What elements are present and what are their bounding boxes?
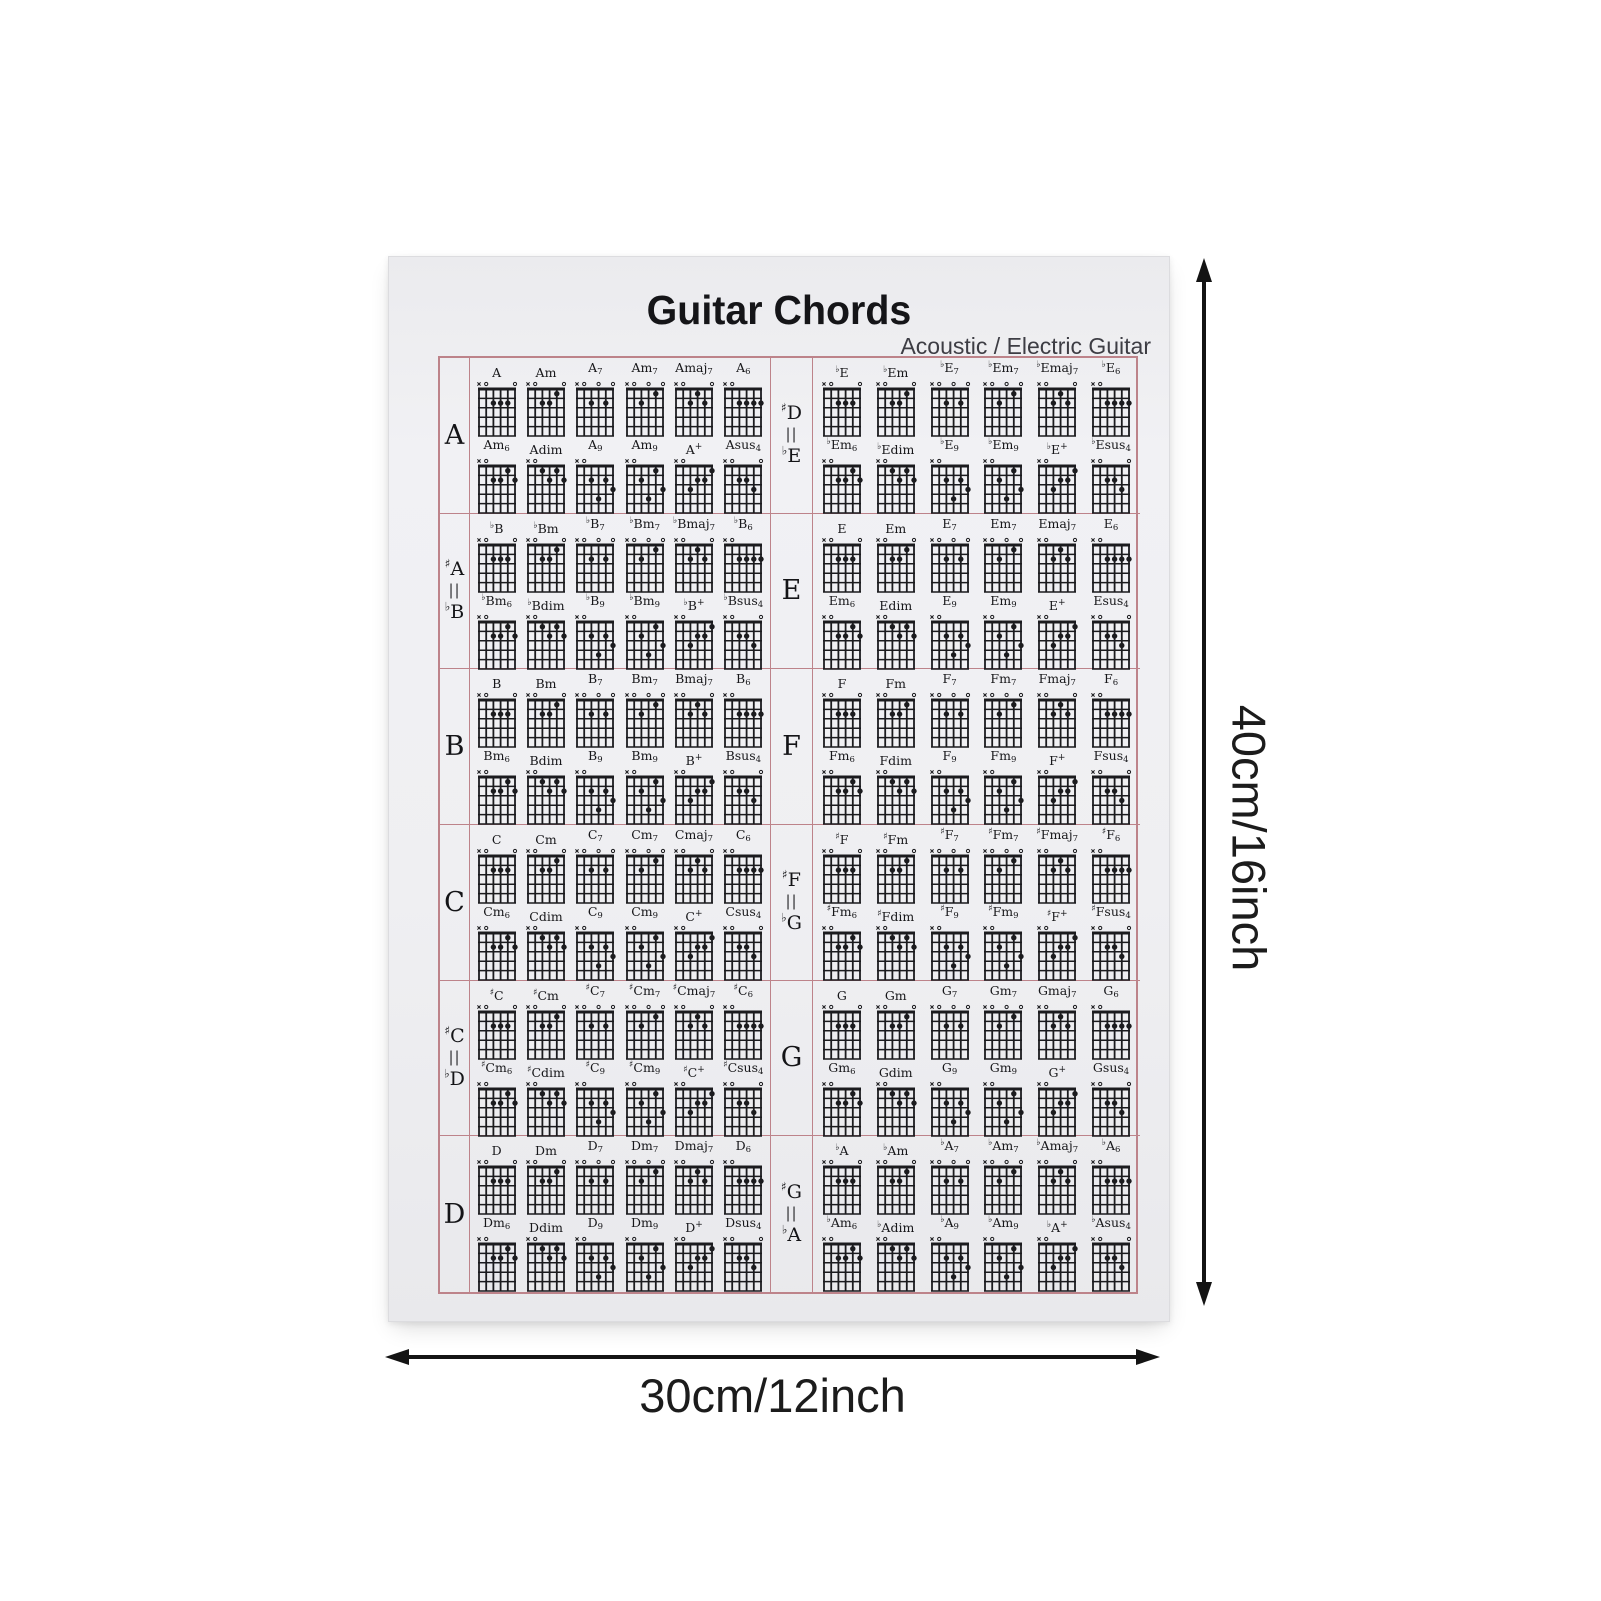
fretboard-diagram: [475, 380, 519, 438]
chord-diagram-cell: A: [472, 361, 521, 438]
fretboard-diagram: [524, 536, 568, 594]
chord-name: Emaj7: [1038, 517, 1076, 535]
chord-name: ♭B9: [586, 594, 605, 612]
fretboard-diagram: [1089, 380, 1133, 438]
chord-name: ♭Bm7: [629, 517, 660, 535]
chord-name: Adim: [530, 443, 563, 456]
chord-name: ♭Esus4: [1091, 438, 1131, 456]
chord-diagram-cell: Dmaj7: [669, 1139, 718, 1216]
chord-diagram-cell: Fmaj7: [1030, 672, 1084, 749]
chord-name: Fsus4: [1094, 749, 1129, 767]
fretboard-diagram: [874, 457, 918, 515]
height-dimension-label: 40cm/16inch: [1222, 705, 1277, 972]
fretboard-diagram: [981, 613, 1025, 671]
chord-name: ♭E+: [1047, 443, 1068, 456]
chord-name: E+: [1049, 599, 1066, 612]
fretboard-diagram: [1089, 768, 1133, 826]
chord-diagram-cell: Am: [521, 361, 570, 438]
chord-diagram-cell: ♯F6: [1084, 828, 1138, 905]
chord-name: Am: [536, 366, 557, 379]
fretboard-diagram: [721, 457, 765, 515]
fretboard-diagram: [981, 1003, 1025, 1061]
chord-name: Amaj7: [675, 361, 713, 379]
guitar-chords-poster: Guitar Chords Acoustic / Electric Guitar…: [388, 256, 1170, 1322]
chord-name: A9: [588, 438, 602, 456]
chord-diagram-cell: B: [472, 672, 521, 749]
fretboard-diagram: [524, 1003, 568, 1061]
fretboard-diagram: [928, 1235, 972, 1293]
chord-name: A7: [588, 361, 602, 379]
fretboard-diagram: [874, 613, 918, 671]
chord-diagram-cell: G+: [1030, 1061, 1084, 1138]
chord-name: Bm: [535, 677, 556, 690]
chord-diagram-cell: ♭Emaj7: [1030, 361, 1084, 438]
fretboard-diagram: [820, 613, 864, 671]
chord-name: B9: [588, 749, 603, 767]
chord-name: Edim: [879, 599, 912, 612]
chord-diagram-cell: F9: [923, 749, 977, 826]
fretboard-diagram: [721, 1003, 765, 1061]
chord-diagram-cell: ♭B7: [571, 517, 620, 594]
chord-block: ♭B♭Bm♭B7♭Bm7♭Bmaj7♭B6♭Bm6♭Bdim♭B9♭Bm9♭B+…: [470, 514, 771, 670]
fretboard-diagram: [928, 457, 972, 515]
fretboard-diagram: [475, 457, 519, 515]
fretboard-diagram: [672, 1235, 716, 1293]
chord-diagram-cell: ♭B9: [571, 594, 620, 671]
fretboard-diagram: [1035, 924, 1079, 982]
width-arrow: [383, 1344, 1162, 1370]
fretboard-diagram: [573, 1235, 617, 1293]
fretboard-diagram: [475, 924, 519, 982]
chord-name: Bdim: [529, 754, 562, 767]
row-key-label: B: [440, 669, 470, 825]
fretboard-diagram: [928, 613, 972, 671]
fretboard-diagram: [623, 1235, 667, 1293]
chord-name: Gm7: [990, 984, 1017, 1002]
fretboard-diagram: [1089, 924, 1133, 982]
chord-diagram-cell: A9: [571, 438, 620, 515]
chord-name: ♭Am9: [988, 1216, 1019, 1234]
chord-diagram-cell: E6: [1084, 517, 1138, 594]
fretboard-diagram: [1035, 1235, 1079, 1293]
fretboard-diagram: [524, 613, 568, 671]
chord-name: Gm6: [828, 1061, 855, 1079]
chord-diagram-cell: ♯Cm7: [620, 984, 669, 1061]
fretboard-diagram: [1035, 613, 1079, 671]
chord-diagram-cell: ♭Asus4: [1084, 1216, 1138, 1293]
chord-diagram-cell: C7: [571, 828, 620, 905]
chord-diagram-cell: Dsus4: [719, 1216, 768, 1293]
chord-diagram-cell: Cm7: [620, 828, 669, 905]
fretboard-diagram: [981, 1235, 1025, 1293]
chord-name: ♯F6: [1102, 828, 1120, 846]
chord-name: B6: [736, 672, 751, 690]
chord-diagram-cell: ♭A7: [923, 1139, 977, 1216]
chord-name: ♭Bdim: [527, 599, 564, 612]
chord-name: ♯Csus4: [723, 1061, 763, 1079]
chord-diagram-cell: Bm6: [472, 749, 521, 826]
fretboard-diagram: [928, 1080, 972, 1138]
chord-name: ♭Am: [883, 1144, 908, 1157]
fretboard-diagram: [623, 1158, 667, 1216]
chord-name: Fmaj7: [1039, 672, 1076, 690]
chord-diagram-cell: Cmaj7: [669, 828, 718, 905]
chord-diagram-cell: ♯F7: [923, 828, 977, 905]
chord-name: Em9: [990, 594, 1016, 612]
chord-name: ♯Cm: [533, 989, 559, 1002]
row-key-label: ♯D||♭E: [771, 358, 813, 514]
chord-name: Cm7: [631, 828, 658, 846]
chord-name: G9: [942, 1061, 957, 1079]
chord-name: ♭A+: [1047, 1221, 1068, 1234]
fretboard-diagram: [721, 1080, 765, 1138]
chord-name: Dm: [535, 1144, 557, 1157]
chord-name: ♭Am7: [988, 1139, 1019, 1157]
chord-diagram-cell: C6: [719, 828, 768, 905]
fretboard-diagram: [524, 691, 568, 749]
chord-name: E7: [942, 517, 957, 535]
fretboard-diagram: [524, 1158, 568, 1216]
chord-diagram-cell: Bm7: [620, 672, 669, 749]
chord-name: A+: [686, 443, 703, 456]
chord-diagram-cell: Fsus4: [1084, 749, 1138, 826]
chord-diagram-cell: ♭Esus4: [1084, 438, 1138, 515]
chord-diagram-cell: ♯Fm7: [976, 828, 1030, 905]
chord-diagram-cell: ♯C: [472, 984, 521, 1061]
chord-diagram-cell: ♭E+: [1030, 438, 1084, 515]
chord-diagram-cell: ♯F: [815, 828, 869, 905]
chord-name: A: [492, 366, 501, 379]
chord-name: ♯Cm9: [629, 1061, 660, 1079]
chord-diagram-cell: ♭Bm: [521, 517, 570, 594]
chord-diagram-cell: Fdim: [869, 749, 923, 826]
chord-name: ♭A9: [940, 1216, 959, 1234]
chord-name: Fm7: [990, 672, 1016, 690]
chord-diagram-cell: Am9: [620, 438, 669, 515]
chord-name: D7: [588, 1139, 603, 1157]
chord-name: ♭Bsus4: [723, 594, 763, 612]
chord-name: ♭Bm6: [481, 594, 512, 612]
chord-diagram-cell: B7: [571, 672, 620, 749]
chord-diagram-cell: ♯Csus4: [719, 1061, 768, 1138]
fretboard-diagram: [1035, 847, 1079, 905]
chord-diagram-cell: Edim: [869, 594, 923, 671]
chord-diagram-cell: ♯Fmaj7: [1030, 828, 1084, 905]
fretboard-diagram: [573, 847, 617, 905]
fretboard-diagram: [573, 613, 617, 671]
chord-diagram-cell: E: [815, 517, 869, 594]
fretboard-diagram: [475, 691, 519, 749]
chord-diagram-cell: Fm9: [976, 749, 1030, 826]
fretboard-diagram: [981, 924, 1025, 982]
fretboard-diagram: [874, 768, 918, 826]
chord-name: D+: [685, 1221, 703, 1234]
chord-block: DDmD7Dm7Dmaj7D6Dm6DdimD9Dm9D+Dsus4: [470, 1136, 771, 1292]
chord-name: Em: [885, 522, 906, 535]
chord-block: CCmC7Cm7Cmaj7C6Cm6CdimC9Cm9C+Csus4: [470, 825, 771, 981]
chord-name: Fm6: [829, 749, 855, 767]
fretboard-diagram: [623, 1003, 667, 1061]
fretboard-diagram: [981, 768, 1025, 826]
fretboard-diagram: [672, 768, 716, 826]
fretboard-diagram: [1089, 1158, 1133, 1216]
chord-name: ♯Fsus4: [1091, 905, 1130, 923]
chord-name: ♭B6: [734, 517, 753, 535]
chord-name: ♯F+: [1047, 910, 1068, 923]
chord-diagram-cell: ♯C+: [669, 1061, 718, 1138]
chord-name: C9: [588, 905, 603, 923]
chord-diagram-cell: ♭B: [472, 517, 521, 594]
chord-name: Bm7: [631, 672, 657, 690]
chord-block: GGmG7Gm7Gmaj7G6Gm6GdimG9Gm9G+Gsus4: [813, 981, 1140, 1137]
fretboard-diagram: [623, 536, 667, 594]
chord-diagram-cell: ♭Em: [869, 361, 923, 438]
chord-name: Dm6: [483, 1216, 510, 1234]
chord-name: ♯F9: [940, 905, 958, 923]
chord-diagram-cell: ♭E6: [1084, 361, 1138, 438]
fretboard-diagram: [573, 536, 617, 594]
fretboard-diagram: [874, 847, 918, 905]
chord-name: ♭Bm9: [629, 594, 660, 612]
chord-diagram-cell: Esus4: [1084, 594, 1138, 671]
chord-diagram-cell: ♭Em7: [976, 361, 1030, 438]
chord-name: E9: [942, 594, 957, 612]
chord-name: G6: [1103, 984, 1118, 1002]
chord-name: ♭B+: [684, 599, 705, 612]
chord-diagram-cell: ♭Am9: [976, 1216, 1030, 1293]
chord-diagram-cell: Cm6: [472, 905, 521, 982]
chord-diagram-cell: ♭Edim: [869, 438, 923, 515]
chord-name: Am6: [484, 438, 510, 456]
chord-diagram-cell: A6: [719, 361, 768, 438]
chord-block: BBmB7Bm7Bmaj7B6Bm6BdimB9Bm9B+Bsus4: [470, 669, 771, 825]
fretboard-diagram: [672, 847, 716, 905]
chord-name: Em7: [990, 517, 1016, 535]
chord-name: ♭Asus4: [1091, 1216, 1131, 1234]
fretboard-diagram: [928, 924, 972, 982]
fretboard-diagram: [623, 768, 667, 826]
chord-name: Dm7: [631, 1139, 658, 1157]
chord-diagram-cell: B+: [669, 749, 718, 826]
height-arrow: [1191, 256, 1217, 1308]
chord-name: C: [492, 833, 502, 846]
chord-diagram-cell: B9: [571, 749, 620, 826]
row-key-label: C: [440, 825, 470, 981]
chord-name: E6: [1104, 517, 1119, 535]
fretboard-diagram: [475, 536, 519, 594]
chord-diagram-cell: D: [472, 1139, 521, 1216]
chord-name: Dm9: [631, 1216, 658, 1234]
chord-diagram-cell: Emaj7: [1030, 517, 1084, 594]
fretboard-diagram: [928, 536, 972, 594]
chord-diagram-cell: Ddim: [521, 1216, 570, 1293]
row-key-label: ♯G||♭A: [771, 1136, 813, 1292]
chord-name: G+: [1048, 1066, 1066, 1079]
chord-diagram-cell: ♭A+: [1030, 1216, 1084, 1293]
chord-diagram-cell: Bm9: [620, 749, 669, 826]
chord-diagram-cell: ♯Cmaj7: [669, 984, 718, 1061]
chord-diagram-cell: ♭Em6: [815, 438, 869, 515]
chord-diagram-cell: ♯Fsus4: [1084, 905, 1138, 982]
chord-diagram-cell: Em9: [976, 594, 1030, 671]
chord-name: Cm9: [631, 905, 658, 923]
chord-name: ♭Edim: [877, 443, 914, 456]
chord-diagram-cell: ♯Fm9: [976, 905, 1030, 982]
fretboard-diagram: [981, 1080, 1025, 1138]
fretboard-diagram: [524, 847, 568, 905]
fretboard-diagram: [820, 380, 864, 438]
fretboard-diagram: [874, 924, 918, 982]
chord-name: Gm: [885, 989, 907, 1002]
chord-diagram-cell: Dm: [521, 1139, 570, 1216]
chord-diagram-cell: Gmaj7: [1030, 984, 1084, 1061]
chord-name: A6: [736, 361, 750, 379]
fretboard-diagram: [820, 1158, 864, 1216]
chord-diagram-cell: Am7: [620, 361, 669, 438]
chord-name: Gmaj7: [1038, 984, 1077, 1002]
chord-name: Dsus4: [725, 1216, 761, 1234]
fretboard-diagram: [1089, 1003, 1133, 1061]
chord-diagram-cell: E+: [1030, 594, 1084, 671]
fretboard-diagram: [623, 457, 667, 515]
fretboard-diagram: [874, 1158, 918, 1216]
fretboard-diagram: [874, 380, 918, 438]
chord-diagram-cell: A+: [669, 438, 718, 515]
chord-diagram-cell: ♯C7: [571, 984, 620, 1061]
fretboard-diagram: [721, 536, 765, 594]
chord-diagram-cell: Adim: [521, 438, 570, 515]
chord-name: ♯C6: [734, 984, 753, 1002]
fretboard-diagram: [672, 536, 716, 594]
chord-name: Bmaj7: [675, 672, 713, 690]
chord-name: Cdim: [529, 910, 562, 923]
row-key-label: D: [440, 1136, 470, 1292]
chord-name: Csus4: [725, 905, 761, 923]
chord-diagram-cell: F+: [1030, 749, 1084, 826]
chord-diagram-cell: A7: [571, 361, 620, 438]
fretboard-diagram: [721, 380, 765, 438]
fretboard-diagram: [623, 613, 667, 671]
chord-diagram-cell: ♭Bsus4: [719, 594, 768, 671]
chord-diagram-cell: ♭A9: [923, 1216, 977, 1293]
chord-diagram-cell: Am6: [472, 438, 521, 515]
chord-diagram-cell: Em7: [976, 517, 1030, 594]
fretboard-diagram: [928, 691, 972, 749]
chord-name: ♯F7: [940, 828, 958, 846]
fretboard-diagram: [623, 1080, 667, 1138]
fretboard-diagram: [475, 613, 519, 671]
chord-diagram-cell: ♭A: [815, 1139, 869, 1216]
chord-diagram-cell: ♭Bdim: [521, 594, 570, 671]
chord-name: ♯Cm7: [629, 984, 660, 1002]
fretboard-diagram: [820, 1003, 864, 1061]
fretboard-diagram: [524, 1080, 568, 1138]
chord-name: G: [837, 989, 847, 1002]
fretboard-diagram: [623, 847, 667, 905]
chord-name: ♭A6: [1102, 1139, 1121, 1157]
chord-name: ♯Cmaj7: [673, 984, 716, 1002]
chord-diagram-cell: Dm6: [472, 1216, 521, 1293]
chord-name: Ddim: [529, 1221, 563, 1234]
chord-name: C+: [685, 910, 702, 923]
chord-grid: AAAmA7Am7Amaj7A6Am6AdimA9Am9A+Asus4♯D||♭…: [438, 356, 1138, 1294]
chord-name: ♭E9: [940, 438, 959, 456]
fretboard-diagram: [672, 613, 716, 671]
chord-name: ♯C7: [586, 984, 605, 1002]
chord-diagram-cell: ♭Bm7: [620, 517, 669, 594]
chord-diagram-cell: F: [815, 672, 869, 749]
fretboard-diagram: [820, 924, 864, 982]
chord-name: ♯Fm6: [827, 905, 857, 923]
fretboard-diagram: [1035, 691, 1079, 749]
fretboard-diagram: [1089, 1235, 1133, 1293]
chord-name: Bm6: [483, 749, 509, 767]
chord-diagram-cell: ♭E9: [923, 438, 977, 515]
chord-name: B+: [686, 754, 703, 767]
fretboard-diagram: [475, 1080, 519, 1138]
fretboard-diagram: [475, 847, 519, 905]
chord-diagram-cell: B6: [719, 672, 768, 749]
fretboard-diagram: [1089, 847, 1133, 905]
width-dimension-label: 30cm/12inch: [385, 1368, 1160, 1423]
fretboard-diagram: [475, 768, 519, 826]
chord-name: ♭Bmaj7: [673, 517, 715, 535]
fretboard-diagram: [928, 380, 972, 438]
chord-diagram-cell: D+: [669, 1216, 718, 1293]
fretboard-diagram: [623, 380, 667, 438]
chord-diagram-cell: ♭B+: [669, 594, 718, 671]
row-key-label: F: [771, 669, 813, 825]
chord-name: Cm6: [483, 905, 510, 923]
chord-diagram-cell: C: [472, 828, 521, 905]
fretboard-diagram: [573, 457, 617, 515]
chord-name: ♭Am6: [827, 1216, 858, 1234]
chord-diagram-cell: C9: [571, 905, 620, 982]
chord-name: ♭Em: [883, 366, 908, 379]
chord-diagram-cell: ♭Amaj7: [1030, 1139, 1084, 1216]
fretboard-diagram: [928, 847, 972, 905]
chord-name: ♯Cdim: [527, 1066, 565, 1079]
fretboard-diagram: [820, 691, 864, 749]
chord-diagram-cell: Cm: [521, 828, 570, 905]
chord-name: F+: [1049, 754, 1065, 767]
chord-diagram-cell: ♯F9: [923, 905, 977, 982]
chord-name: B7: [588, 672, 603, 690]
chord-diagram-cell: ♭Em9: [976, 438, 1030, 515]
product-image: Guitar Chords Acoustic / Electric Guitar…: [0, 0, 1601, 1601]
fretboard-diagram: [721, 1158, 765, 1216]
fretboard-diagram: [573, 924, 617, 982]
fretboard-diagram: [475, 1235, 519, 1293]
fretboard-diagram: [928, 1158, 972, 1216]
fretboard-diagram: [820, 457, 864, 515]
chord-name: ♭Amaj7: [1036, 1139, 1078, 1157]
chord-name: Fm: [885, 677, 906, 690]
fretboard-diagram: [672, 924, 716, 982]
chord-name: ♭Em6: [827, 438, 858, 456]
fretboard-diagram: [524, 457, 568, 515]
fretboard-diagram: [672, 1003, 716, 1061]
chord-name: ♭Emaj7: [1036, 361, 1078, 379]
chord-name: ♭Em9: [988, 438, 1019, 456]
fretboard-diagram: [721, 691, 765, 749]
chord-name: F9: [943, 749, 957, 767]
chord-diagram-cell: Gm: [869, 984, 923, 1061]
chord-diagram-cell: C+: [669, 905, 718, 982]
chord-diagram-cell: ♯Fdim: [869, 905, 923, 982]
chord-name: Dmaj7: [675, 1139, 714, 1157]
fretboard-diagram: [524, 924, 568, 982]
